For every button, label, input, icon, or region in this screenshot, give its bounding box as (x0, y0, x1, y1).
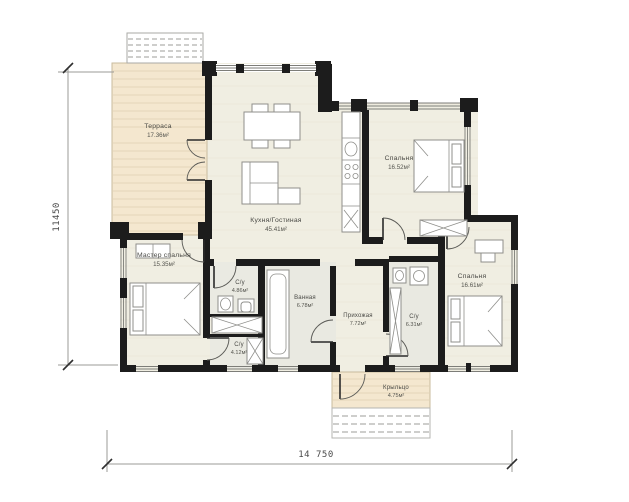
room-area-bedroom1: 16.52м² (388, 164, 410, 171)
glazing-post (466, 363, 471, 372)
dimension-bottom: 14 750 (102, 430, 517, 472)
room-area-wc2: 4.12м² (231, 350, 248, 356)
sink-wc3 (393, 268, 406, 283)
room-label-wc3: С/у (409, 314, 419, 320)
floor-plan-page: Терраса 17.36м² Кухня/Гостиная 45.41м² С… (0, 0, 629, 502)
room-label-bedroom2: Спальня (458, 273, 487, 280)
floor-plan-svg: Терраса 17.36м² Кухня/Гостиная 45.41м² С… (0, 0, 629, 502)
closet-wc3 (390, 288, 401, 354)
glazing-post (282, 64, 290, 73)
room-area-kitchen-living: 45.41м² (265, 226, 287, 233)
room-label-terrace: Терраса (144, 123, 171, 130)
bed-bedroom1 (414, 140, 464, 192)
bed-master (130, 283, 200, 335)
toilet-wc1 (238, 299, 254, 312)
closet-center (212, 317, 262, 333)
closet-tall (247, 338, 263, 364)
room-area-master: 15.35м² (153, 261, 175, 268)
room-label-wc1: С/у (235, 280, 245, 286)
sink-wc1 (218, 296, 233, 312)
kitchen-counter (342, 112, 360, 232)
dimension-height-label: 11450 (52, 202, 62, 232)
porch (332, 372, 430, 438)
dimension-left: 11450 (52, 63, 118, 370)
room-area-hallway: 7.72м² (350, 321, 367, 327)
room-area-terrace: 17.36м² (147, 132, 169, 139)
room-label-porch: Крыльцо (383, 385, 409, 391)
porch-steps (332, 408, 430, 438)
room-area-wc3: 6.31м² (406, 322, 423, 328)
room-area-porch: 4.75м² (388, 393, 405, 399)
bathtub (267, 270, 289, 358)
room-area-wc1: 4.86м² (232, 288, 249, 294)
room-label-wc2: С/у (234, 342, 244, 348)
room-label-kitchen-living: Кухня/Гостиная (250, 217, 302, 224)
room-label-bathroom: Ванная (294, 295, 316, 301)
room-label-bedroom1: Спальня (385, 155, 414, 162)
washing-machine (410, 267, 428, 285)
bed-bedroom2 (448, 296, 502, 346)
glazing-post (410, 100, 418, 111)
dimension-width-label: 14 750 (298, 450, 334, 460)
glazing-post (236, 64, 244, 73)
terrace-deck-lines (113, 71, 206, 231)
room-label-master: Мастер спальня (137, 252, 191, 259)
room-area-bedroom2: 16.61м² (461, 282, 483, 289)
room-label-hallway: Прихожая (343, 313, 372, 319)
room-area-bathroom: 6.78м² (297, 303, 314, 309)
wardrobe-bedroom1 (420, 220, 467, 236)
terrace-steps (127, 33, 203, 63)
